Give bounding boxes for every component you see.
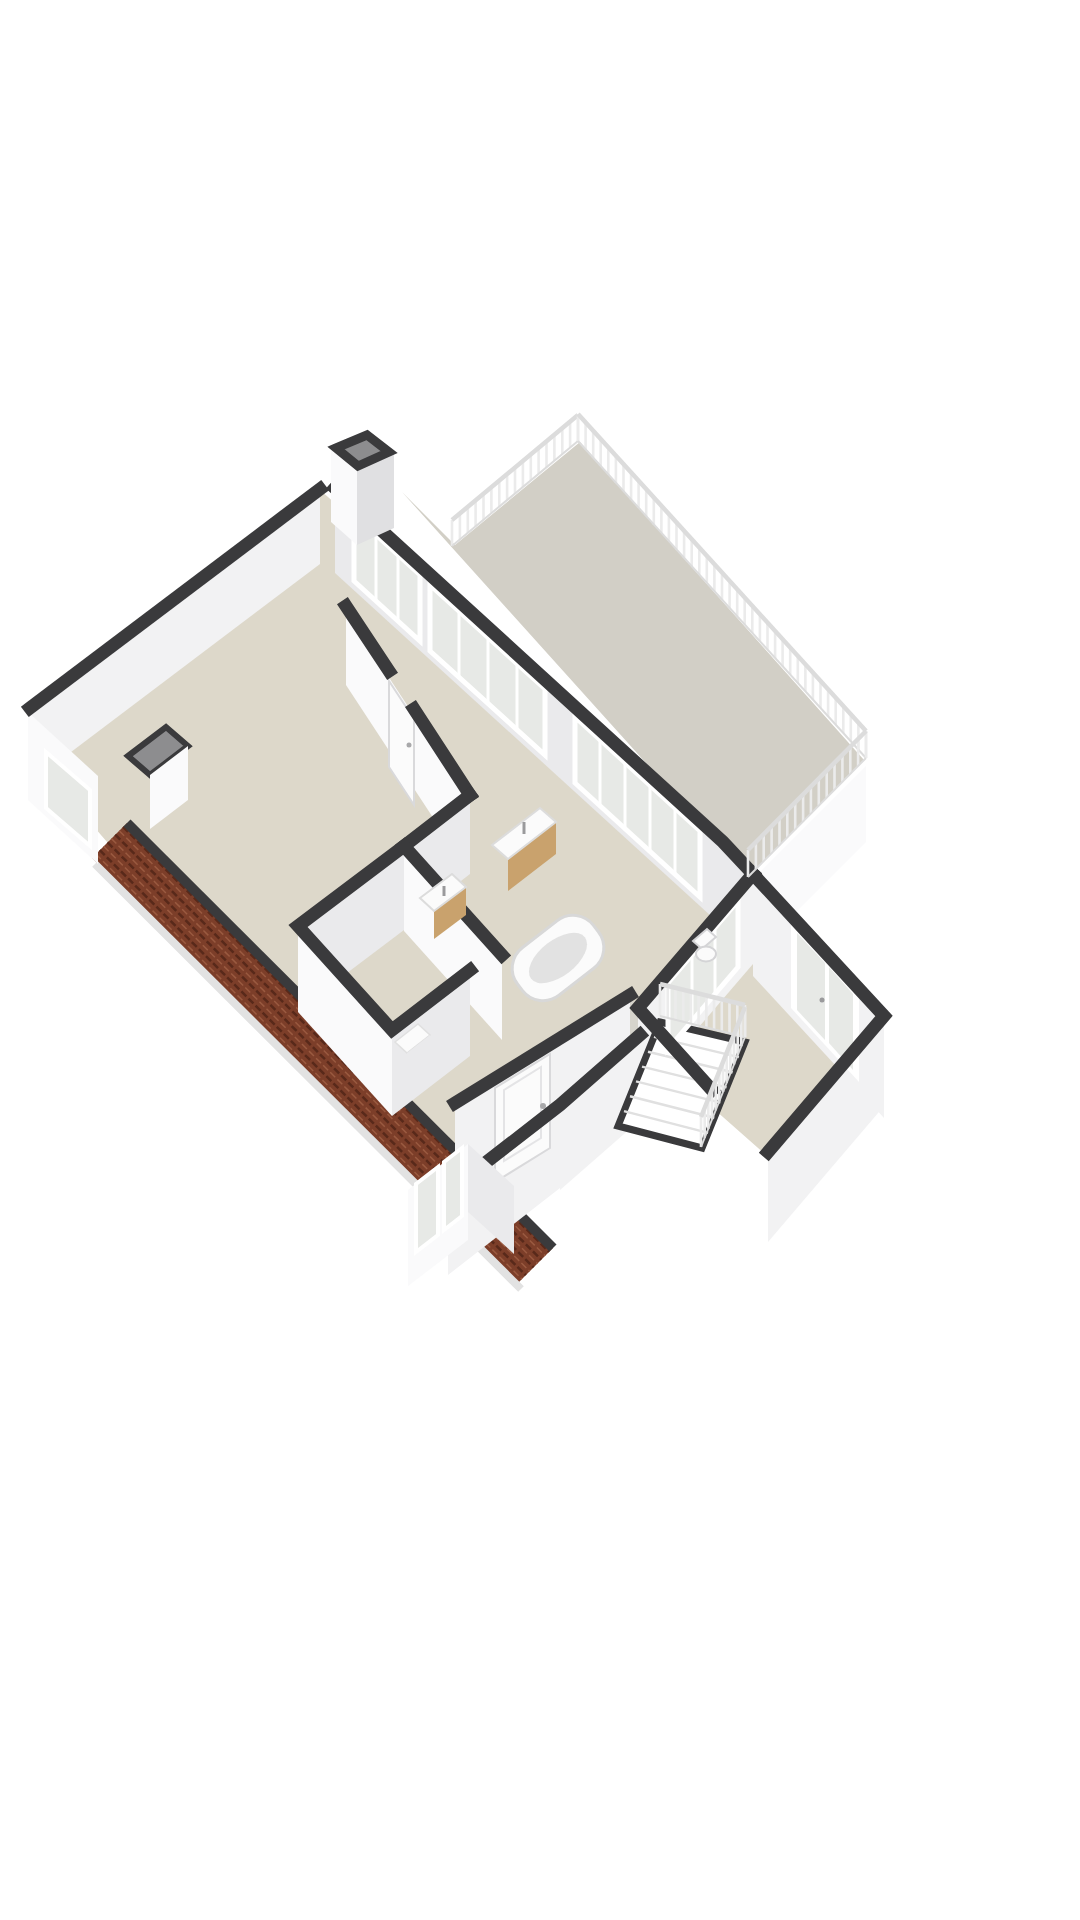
floorplan-3d-rendering xyxy=(0,0,1080,1920)
toilet-bowl xyxy=(696,947,716,962)
dormer-window xyxy=(416,1167,438,1252)
door-handle xyxy=(407,743,412,748)
door-handle xyxy=(540,1103,546,1109)
door-handle xyxy=(820,998,825,1003)
chimney xyxy=(331,435,394,545)
floorplan-page xyxy=(0,0,1080,1920)
dormer-window xyxy=(444,1148,462,1230)
